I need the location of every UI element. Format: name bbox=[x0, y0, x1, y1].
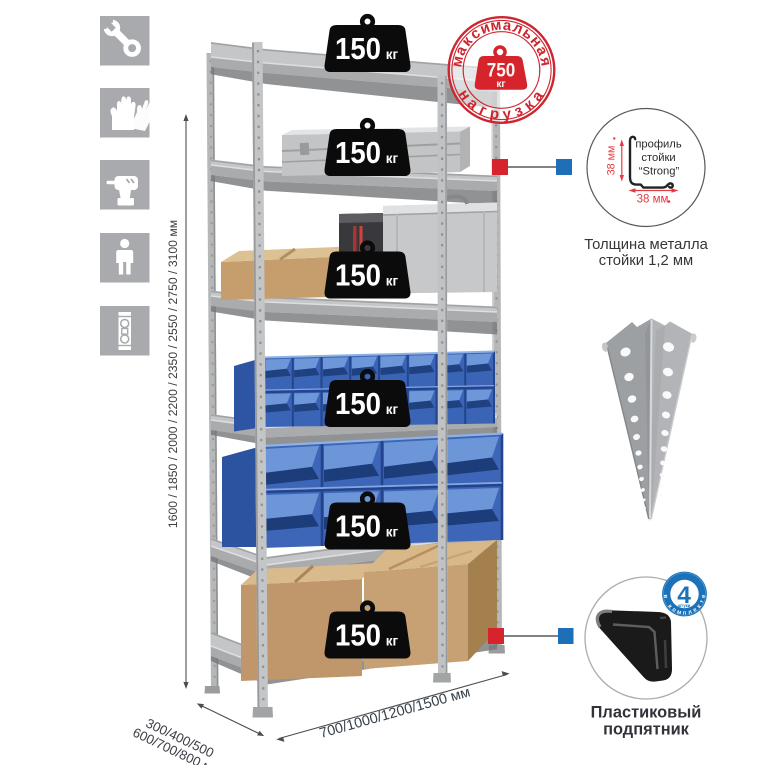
svg-text:Толщина металла: Толщина металла bbox=[584, 237, 708, 253]
svg-text:38 мм: 38 мм bbox=[606, 146, 618, 176]
svg-text:150: 150 bbox=[335, 135, 381, 170]
svg-text:150: 150 bbox=[335, 258, 381, 293]
svg-text:п: п bbox=[683, 611, 687, 617]
svg-text:150: 150 bbox=[335, 31, 381, 66]
svg-text:“Strong”: “Strong” bbox=[639, 166, 680, 178]
svg-text:1600 / 1850 / 2000 / 2200 / 23: 1600 / 1850 / 2000 / 2200 / 2350 / 2550 … bbox=[166, 220, 180, 528]
svg-text:кг: кг bbox=[386, 47, 399, 62]
svg-text:кг: кг bbox=[386, 402, 399, 417]
svg-text:подпятник: подпятник bbox=[603, 721, 690, 739]
svg-text:кг: кг bbox=[386, 525, 399, 540]
svg-text:профиль: профиль bbox=[635, 139, 681, 151]
svg-text:кг: кг bbox=[386, 274, 399, 289]
svg-text:150: 150 bbox=[335, 386, 381, 421]
svg-text:кг: кг bbox=[496, 79, 505, 90]
svg-text:стойки 1,2 мм: стойки 1,2 мм bbox=[599, 253, 693, 269]
svg-text:150: 150 bbox=[335, 509, 381, 544]
svg-text:150: 150 bbox=[335, 618, 381, 653]
svg-text:стойки: стойки bbox=[641, 152, 675, 164]
svg-text:штуки: штуки bbox=[678, 603, 691, 608]
svg-text:кг: кг bbox=[386, 151, 399, 166]
svg-text:м: м bbox=[490, 18, 503, 35]
svg-text:кг: кг bbox=[386, 634, 399, 649]
svg-text:Пластиковый: Пластиковый bbox=[591, 704, 702, 722]
svg-text:38 мм: 38 мм bbox=[637, 194, 669, 206]
